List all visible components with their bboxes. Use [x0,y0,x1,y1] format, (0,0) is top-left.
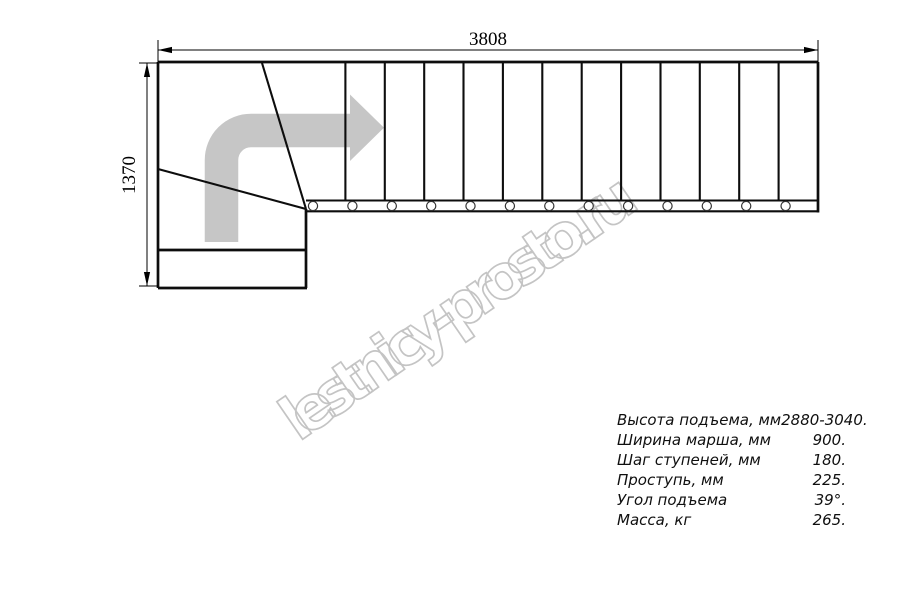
spec-row: Высота подъема, мм 2880-3040. [617,410,846,430]
spec-value: 900. [813,430,846,450]
dimension-left-value: 1370 [119,156,140,194]
stair-outline [158,62,818,288]
baluster-circles [308,201,790,210]
spec-row: Проступь, мм 225. [617,470,846,490]
spec-label: Ширина марша, мм [617,430,771,450]
tread-lines [345,63,778,200]
spec-label: Высота подъема, мм [617,410,781,430]
spec-row: Ширина марша, мм 900. [617,430,846,450]
staircase-drawing-page: lestnicy-prosto.ru [0,0,900,600]
dimension-1370: 1370 [119,63,158,286]
spec-value: 265. [813,510,846,530]
spec-table: Высота подъема, мм 2880-3040. Ширина мар… [617,410,846,530]
spec-value: 39°. [815,490,846,510]
spec-value: 225. [813,470,846,490]
spec-row: Шаг ступеней, мм 180. [617,450,846,470]
spec-label: Угол подъема [617,490,727,510]
dimension-top-value: 3808 [469,29,507,50]
spec-value: 180. [813,450,846,470]
spec-label: Проступь, мм [617,470,724,490]
dimension-3808: 3808 [158,29,818,62]
spec-row: Масса, кг 265. [617,510,846,530]
spec-label: Масса, кг [617,510,691,530]
direction-arrow-icon [222,95,385,243]
spec-value: 2880-3040. [781,410,868,430]
spec-label: Шаг ступеней, мм [617,450,761,470]
spec-row: Угол подъема 39°. [617,490,846,510]
